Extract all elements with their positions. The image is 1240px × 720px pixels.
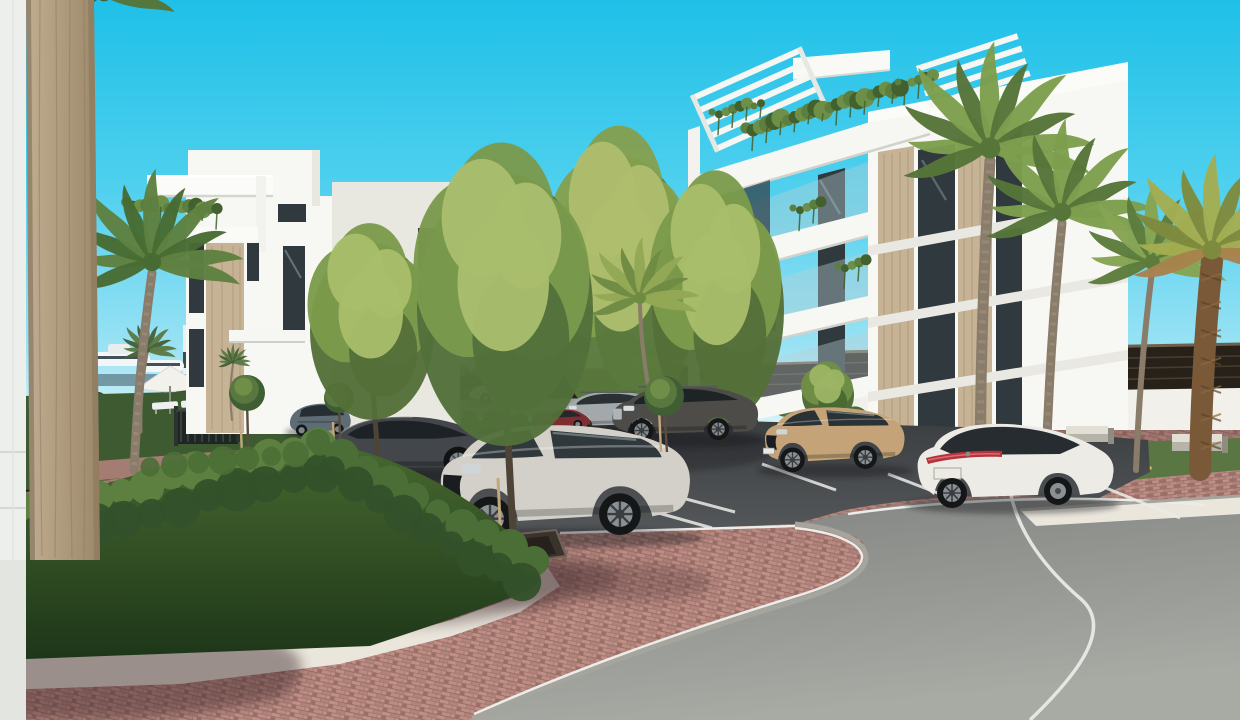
apartment-complex-render bbox=[0, 0, 1240, 720]
rendered-scene bbox=[0, 0, 1240, 720]
